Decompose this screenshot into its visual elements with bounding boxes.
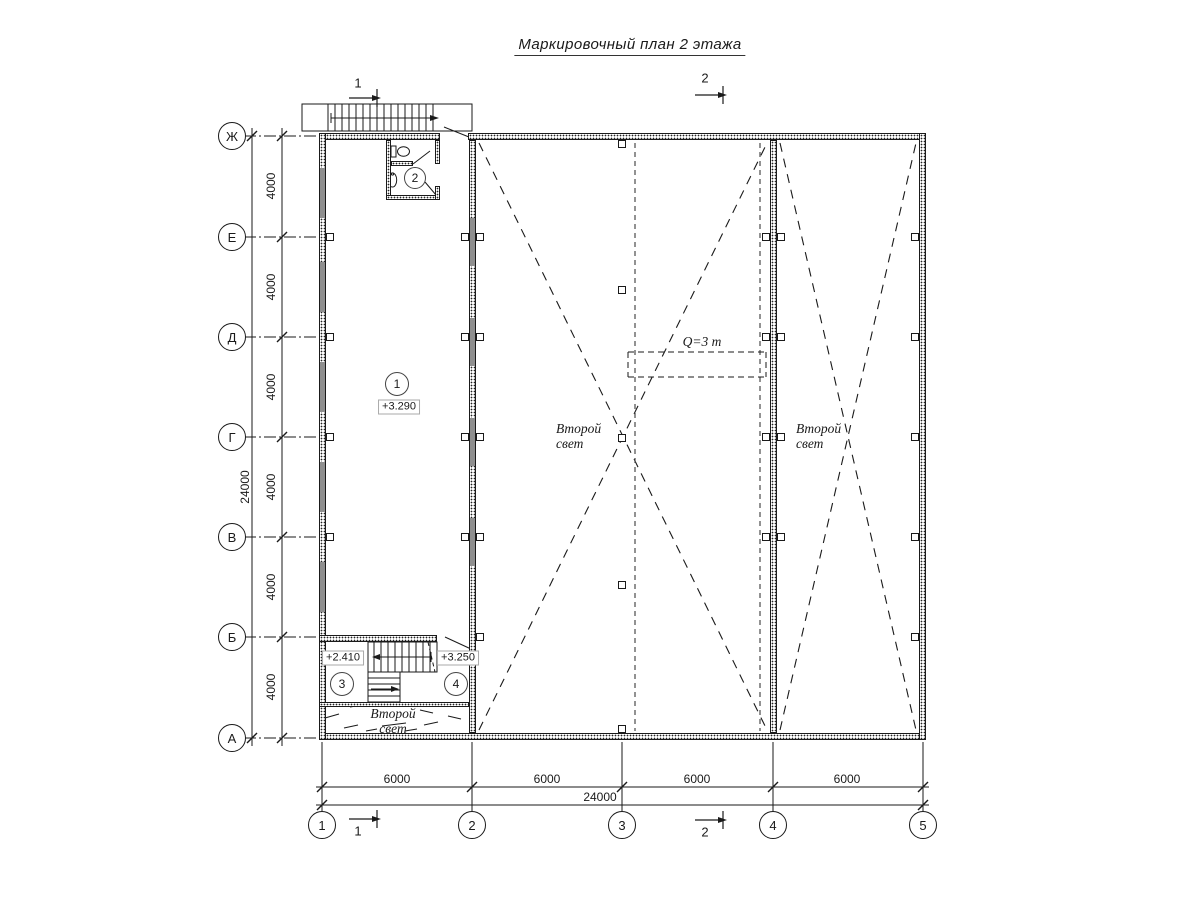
crane-bridge-outline	[628, 352, 766, 377]
axis-circle-col-5: 5	[909, 811, 937, 839]
axis-and-dimension-lines	[244, 128, 929, 811]
wall-left	[319, 133, 326, 740]
pilaster	[911, 533, 919, 541]
pilaster	[777, 233, 785, 241]
pilaster	[461, 433, 469, 441]
bathroom-wall-right-upper	[435, 140, 440, 164]
pilaster	[777, 433, 785, 441]
pilaster	[476, 633, 484, 641]
pilaster	[762, 433, 770, 441]
second-light-line1: Второй	[370, 706, 415, 721]
dim-left-segment: 4000	[264, 173, 278, 200]
column	[618, 434, 626, 442]
pilaster	[476, 533, 484, 541]
pilaster	[326, 233, 334, 241]
bathroom-wall-left	[386, 140, 391, 200]
window-segment	[320, 462, 325, 512]
room-number: 2	[412, 171, 419, 185]
column	[618, 581, 626, 589]
room-tag-3: 3	[330, 672, 354, 696]
axis-circle-col-1: 1	[308, 811, 336, 839]
axis-col-label: 4	[769, 818, 776, 833]
second-light-diagonals	[479, 143, 916, 730]
axis-circle-col-2: 2	[458, 811, 486, 839]
second-light-line2: свет	[556, 436, 601, 451]
plan-title: Маркировочный план 2 этажа	[514, 36, 745, 56]
dim-left-segment: 4000	[264, 574, 278, 601]
wall-top-right	[468, 133, 926, 140]
wall-top-left	[319, 133, 440, 140]
room-number: 1	[394, 377, 401, 391]
section-mark-1-top: 1	[354, 76, 361, 91]
window-segment	[470, 418, 475, 466]
wall-right	[919, 133, 926, 740]
window-segment	[320, 362, 325, 412]
window-segment	[470, 218, 475, 266]
second-light-line1: Второй	[796, 421, 841, 436]
dim-bottom-total: 24000	[583, 790, 616, 804]
window-segment	[320, 262, 325, 312]
pilaster	[911, 433, 919, 441]
axis-row-label: Ж	[226, 129, 238, 144]
room-tag-1: 1	[385, 372, 409, 396]
dim-bottom-segment: 6000	[384, 772, 411, 786]
toilet-icon	[391, 146, 410, 157]
pilaster	[476, 433, 484, 441]
pilaster	[461, 533, 469, 541]
floor-plan-sheet: Маркировочный план 2 этажа Ж Е Д Г В Б А…	[0, 0, 1200, 900]
window-segment	[470, 318, 475, 366]
bathroom-wall-right-lower	[435, 186, 440, 200]
second-light-line2: свет	[370, 721, 415, 736]
second-light-label-center: Второй свет	[556, 421, 601, 451]
axis-circle-row-b: Б	[218, 623, 246, 651]
wall-axis-4	[770, 140, 777, 733]
axis-col-label: 2	[468, 818, 475, 833]
crane-rail-lines	[635, 143, 760, 731]
bathroom-partition	[391, 161, 413, 166]
axis-row-label: Е	[228, 230, 237, 245]
axis-row-label: Б	[228, 630, 237, 645]
pilaster	[476, 333, 484, 341]
axis-circle-row-g: Г	[218, 423, 246, 451]
dim-left-segment: 4000	[264, 674, 278, 701]
axis-row-label: А	[228, 731, 237, 746]
axis-circle-row-v: В	[218, 523, 246, 551]
column	[618, 140, 626, 148]
pilaster	[461, 333, 469, 341]
pilaster	[762, 533, 770, 541]
pilaster	[476, 233, 484, 241]
second-light-label-stair: Второй свет	[370, 706, 415, 736]
pilaster	[762, 333, 770, 341]
pilaster	[911, 633, 919, 641]
window-segment	[470, 518, 475, 566]
window-segment	[320, 168, 325, 218]
pilaster	[326, 433, 334, 441]
dim-bottom-segment: 6000	[834, 772, 861, 786]
level-mark-room-4: +3.250	[437, 651, 479, 666]
column	[618, 286, 626, 294]
pilaster	[777, 333, 785, 341]
axis-circle-col-3: 3	[608, 811, 636, 839]
dim-left-total: 24000	[238, 470, 252, 503]
axis-col-label: 5	[919, 818, 926, 833]
axis-row-label: Г	[228, 430, 235, 445]
axis-row-label: Д	[228, 330, 237, 345]
axis-circle-row-zh: Ж	[218, 122, 246, 150]
pilaster	[326, 533, 334, 541]
second-light-line2: свет	[796, 436, 841, 451]
pilaster	[777, 533, 785, 541]
pilaster	[326, 333, 334, 341]
column	[618, 725, 626, 733]
room-number: 3	[339, 677, 346, 691]
second-light-line1: Второй	[556, 421, 601, 436]
level-mark-room-1: +3.290	[378, 400, 420, 415]
dim-left-segment: 4000	[264, 374, 278, 401]
interior-stair	[368, 642, 437, 706]
axis-col-label: 1	[318, 818, 325, 833]
window-segment	[320, 562, 325, 612]
dim-left-segment: 4000	[264, 274, 278, 301]
second-light-label-right: Второй свет	[796, 421, 841, 451]
pilaster	[911, 333, 919, 341]
crane-capacity-label: Q=3 т	[683, 334, 722, 350]
stair-hall-wall-top	[319, 635, 437, 642]
room-tag-4: 4	[444, 672, 468, 696]
bathroom-wall-bottom	[386, 195, 440, 200]
axis-row-label: В	[228, 530, 237, 545]
room-number: 4	[453, 677, 460, 691]
pilaster	[762, 233, 770, 241]
section-mark-2-top: 2	[701, 71, 708, 86]
axis-circle-row-a: А	[218, 724, 246, 752]
dim-bottom-segment: 6000	[684, 772, 711, 786]
level-mark-room-3: +2.410	[322, 651, 364, 666]
axis-col-label: 3	[618, 818, 625, 833]
axis-circle-col-4: 4	[759, 811, 787, 839]
dim-left-segment: 4000	[264, 474, 278, 501]
dim-bottom-segment: 6000	[534, 772, 561, 786]
axis-circle-row-d: Д	[218, 323, 246, 351]
room-tag-2: 2	[404, 167, 426, 189]
pilaster	[911, 233, 919, 241]
exterior-stair	[302, 104, 472, 131]
section-mark-1-bottom: 1	[354, 824, 361, 839]
door-leaves	[413, 127, 474, 649]
pilaster	[461, 233, 469, 241]
section-mark-2-bottom: 2	[701, 825, 708, 840]
axis-circle-row-e: Е	[218, 223, 246, 251]
